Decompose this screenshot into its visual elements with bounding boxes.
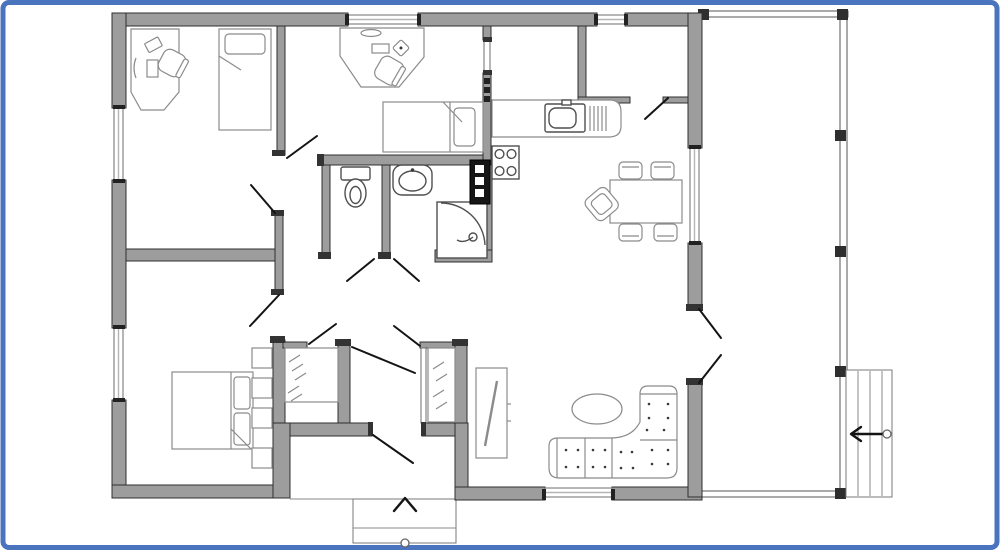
tv-cabinet-icon (476, 368, 511, 458)
toilet-icon (341, 167, 370, 207)
bathroom-fixtures (393, 160, 490, 258)
veranda (698, 9, 892, 499)
closet-outline (285, 348, 338, 402)
pillow (225, 34, 265, 54)
clothes-rail-icon (288, 355, 306, 401)
floor-plan-page (0, 0, 1000, 550)
kids-bedroom-furniture (340, 28, 483, 152)
closet-right (428, 348, 455, 422)
kitchen-furniture (492, 100, 621, 179)
pillow (234, 377, 250, 409)
desk-lamp-icon (361, 30, 381, 37)
window-top-2 (594, 14, 628, 25)
veranda-door-swing-lower (699, 355, 721, 383)
master-bedroom-furniture (172, 348, 272, 468)
single-bed-icon (383, 102, 483, 152)
dining-table-icon (610, 180, 682, 223)
washbasin-icon (393, 165, 432, 195)
dining-chair-icon (619, 162, 642, 179)
monitor-icon (372, 44, 389, 53)
front-door-swing (373, 435, 413, 463)
dining-chair-icon (651, 162, 674, 179)
entry-point-marker (401, 539, 409, 547)
pantry-door-swing (645, 98, 668, 119)
double-bed-icon (172, 372, 253, 449)
shower-cabin-icon (437, 202, 487, 258)
dining-chair-icon (619, 224, 642, 241)
office-door-swing (251, 185, 275, 213)
front-entry-steps (290, 498, 456, 547)
water-heater-icon (470, 160, 490, 204)
kids-bedroom-door-swing (287, 136, 317, 158)
closet-right-door-swing (394, 326, 420, 346)
entry-point-marker (883, 430, 891, 438)
shelf-column-icon (252, 348, 272, 468)
office-furniture (131, 29, 271, 130)
window-top-1 (345, 14, 421, 25)
living-furniture (476, 368, 677, 478)
interior-walls (126, 26, 688, 423)
keyboard-icon (147, 60, 158, 77)
dining-furniture (583, 162, 682, 241)
veranda-railing-top (702, 11, 848, 17)
clothes-rail-icon (433, 362, 447, 409)
window-left-2 (113, 325, 125, 402)
dining-chair-icon (654, 224, 677, 241)
closet-left (285, 348, 338, 402)
veranda-railing-bottom (702, 491, 838, 497)
wc-fixtures (341, 167, 370, 207)
bathroom-door-swing (394, 259, 419, 281)
hall-door-swing (352, 347, 415, 373)
master-bedroom-door-swing (250, 295, 279, 326)
window-bottom (542, 488, 615, 500)
veranda-door-swing-upper (699, 309, 721, 338)
window-left-1 (113, 105, 125, 183)
coffee-table-icon (572, 394, 622, 424)
veranda-posts (698, 9, 848, 499)
single-bed-icon (219, 29, 271, 130)
closet-left-door-swing (309, 324, 336, 344)
window-east (689, 145, 701, 245)
wc-door-swing (347, 259, 374, 281)
house-floor-plan (0, 0, 1000, 550)
kitchen-sink-icon (545, 100, 585, 132)
veranda-side-steps (846, 370, 892, 497)
pillow (454, 108, 475, 146)
closet-outline (428, 348, 455, 422)
stove-icon (492, 146, 519, 179)
